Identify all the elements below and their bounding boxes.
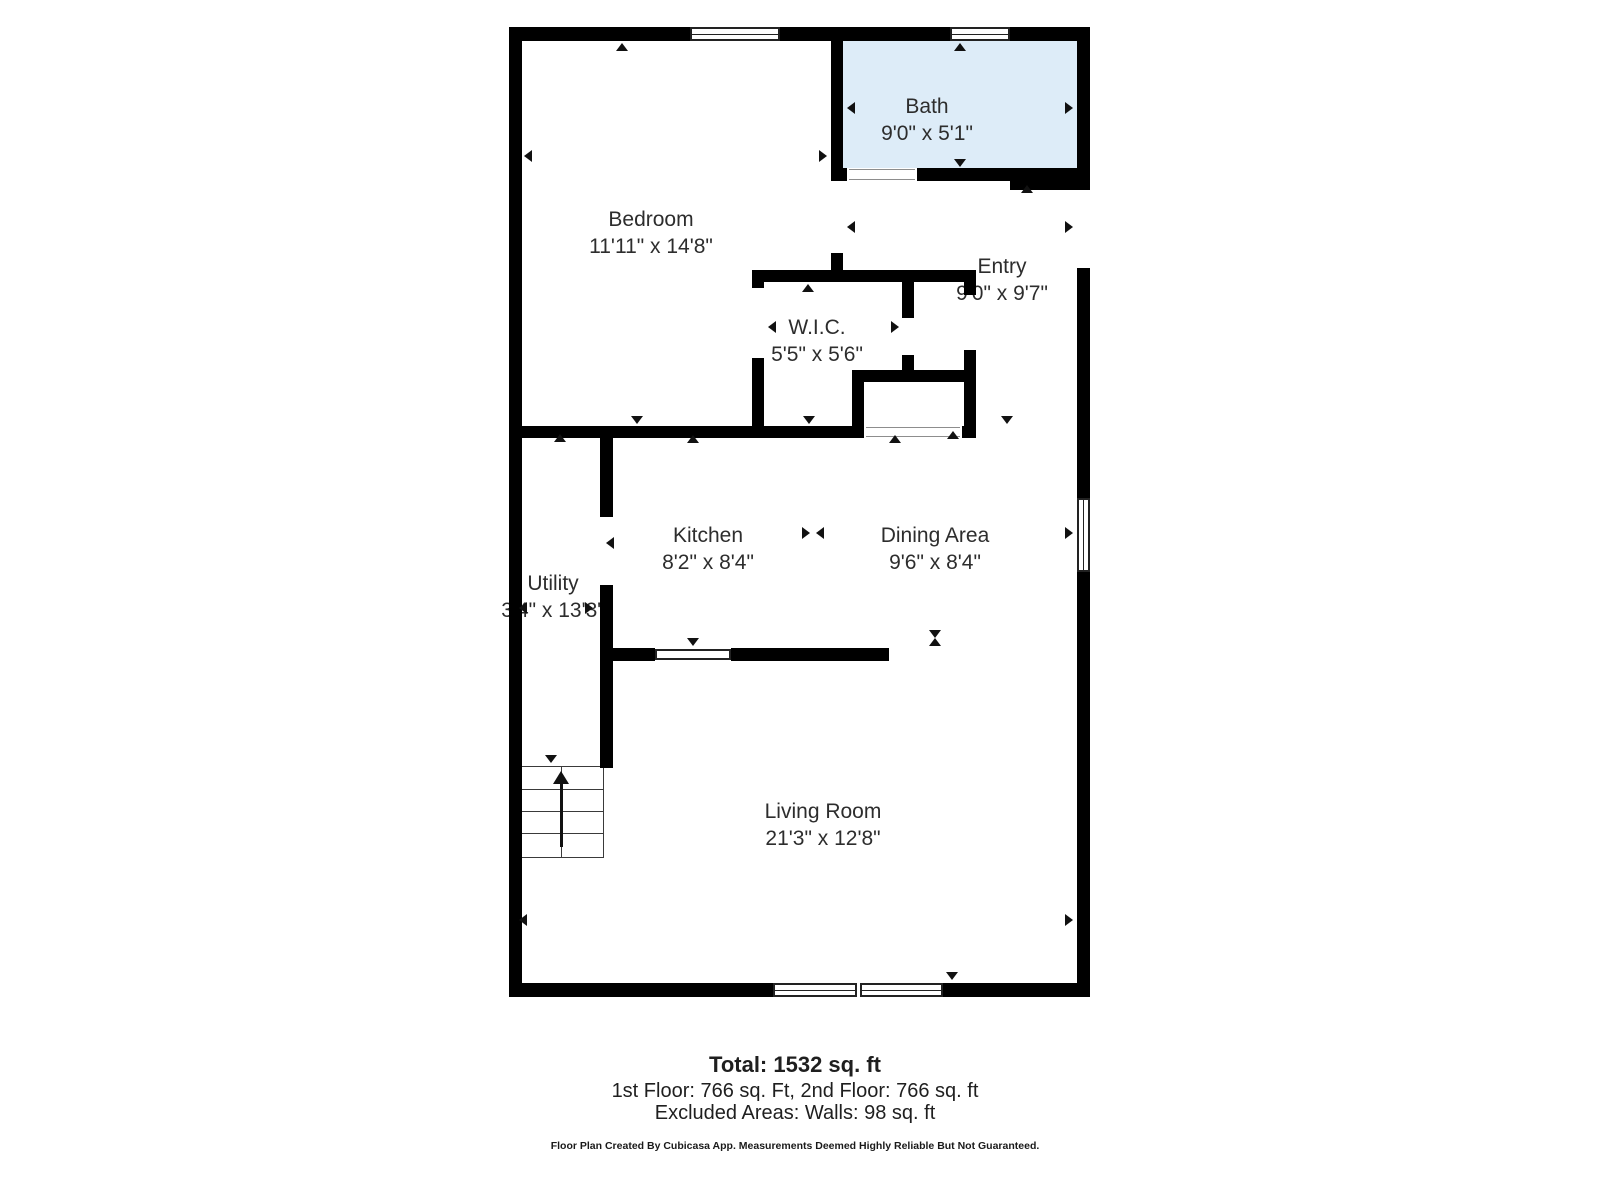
dimension-arrow-left-icon [847,102,855,114]
floor-plan: Bath9'0" x 5'1"Bedroom11'11" x 14'8"Entr… [0,0,1600,1200]
window-mullion [855,983,862,997]
wall [831,168,847,181]
window [773,983,943,997]
wall [1077,27,1090,190]
dimension-arrow-right-icon [819,150,827,162]
dimension-arrow-up-icon [947,431,959,439]
disclaimer-text: Floor Plan Created By Cubicasa App. Meas… [400,1140,1190,1152]
kitchen-label: Kitchen8'2" x 8'4" [662,522,754,576]
bath-name: Bath [881,93,973,120]
door-threshold [849,169,915,180]
dimension-arrow-down-icon [687,638,699,646]
window [950,27,1010,41]
window-pane-line [1083,500,1084,570]
dimension-arrow-up-icon [802,284,814,292]
living-room-label: Living Room21'3" x 12'8" [765,798,882,852]
window [655,649,731,660]
staircase [516,766,604,858]
dimension-arrow-right-icon [1065,914,1073,926]
dimension-arrow-up-icon [554,434,566,442]
wall [752,270,764,288]
wic-dimensions: 5'5" x 5'6" [771,341,863,368]
bedroom-dimensions: 11'11" x 14'8" [589,233,713,260]
wall [964,282,976,295]
dimension-arrow-up-icon [1021,185,1033,193]
dimension-arrow-left-icon [606,537,614,549]
dimension-arrow-left-icon [519,914,527,926]
dimension-arrow-right-icon [802,527,810,539]
dimension-arrow-down-icon [803,416,815,424]
wic-name: W.I.C. [771,314,863,341]
wall [1077,268,1090,498]
wall [1077,572,1090,997]
dimension-arrow-left-icon [524,150,532,162]
dimension-arrow-right-icon [585,602,593,614]
bath-dimensions: 9'0" x 5'1" [881,120,973,147]
dimension-arrow-right-icon [1065,221,1073,233]
dimension-arrow-down-icon [946,972,958,980]
door-threshold [866,427,960,437]
kitchen-dimensions: 8'2" x 8'4" [662,549,754,576]
stair-up-arrow-icon [553,771,569,784]
floor-plan-canvas: Bath9'0" x 5'1"Bedroom11'11" x 14'8"Entr… [0,0,1600,1200]
dimension-arrow-left-icon [519,602,527,614]
dimension-arrow-up-icon [889,435,901,443]
dimension-arrow-up-icon [954,43,966,51]
dimension-arrow-down-icon [954,159,966,167]
kitchen-name: Kitchen [662,522,754,549]
bedroom-label: Bedroom11'11" x 14'8" [589,206,713,260]
dimension-arrow-left-icon [847,221,855,233]
wall [852,370,976,382]
dimension-arrow-up-icon [687,435,699,443]
wall [600,438,613,517]
excluded-areas-text: Excluded Areas: Walls: 98 sq. ft [400,1102,1190,1124]
dimension-arrow-left-icon [816,527,824,539]
dimension-arrow-down-icon [545,755,557,763]
wall [962,426,976,438]
wic-label: W.I.C.5'5" x 5'6" [771,314,863,368]
window [1077,498,1090,572]
wall [509,27,522,997]
dining-area-dimensions: 9'6" x 8'4" [881,549,990,576]
dimension-arrow-up-icon [929,638,941,646]
wall [964,350,976,438]
dimension-arrow-right-icon [1065,527,1073,539]
living-room-name: Living Room [765,798,882,825]
stair-direction-stem [560,784,563,847]
wall [917,168,1010,181]
bedroom-name: Bedroom [589,206,713,233]
floor-areas-text: 1st Floor: 766 sq. Ft, 2nd Floor: 766 sq… [400,1080,1190,1102]
dimension-arrow-down-icon [929,630,941,638]
dining-area-label: Dining Area9'6" x 8'4" [881,522,990,576]
wall [902,282,914,318]
wall [731,648,889,661]
dimension-arrow-down-icon [1001,416,1013,424]
wall [600,585,613,768]
summary-footer: Total: 1532 sq. ft 1st Floor: 766 sq. Ft… [400,1050,1190,1152]
dining-area-name: Dining Area [881,522,990,549]
bath-label: Bath9'0" x 5'1" [881,93,973,147]
dimension-arrow-up-icon [616,43,628,51]
living-room-dimensions: 21'3" x 12'8" [765,825,882,852]
wall [613,648,655,661]
window-pane-line [692,34,778,35]
dimension-arrow-down-icon [631,416,643,424]
dimension-arrow-right-icon [1065,102,1073,114]
total-area-text: Total: 1532 sq. ft [400,1050,1190,1080]
dimension-arrow-left-icon [768,321,776,333]
wall [831,41,843,181]
wall [752,270,976,282]
window [690,27,780,41]
dimension-arrow-right-icon [891,321,899,333]
window-pane-line [952,34,1008,35]
